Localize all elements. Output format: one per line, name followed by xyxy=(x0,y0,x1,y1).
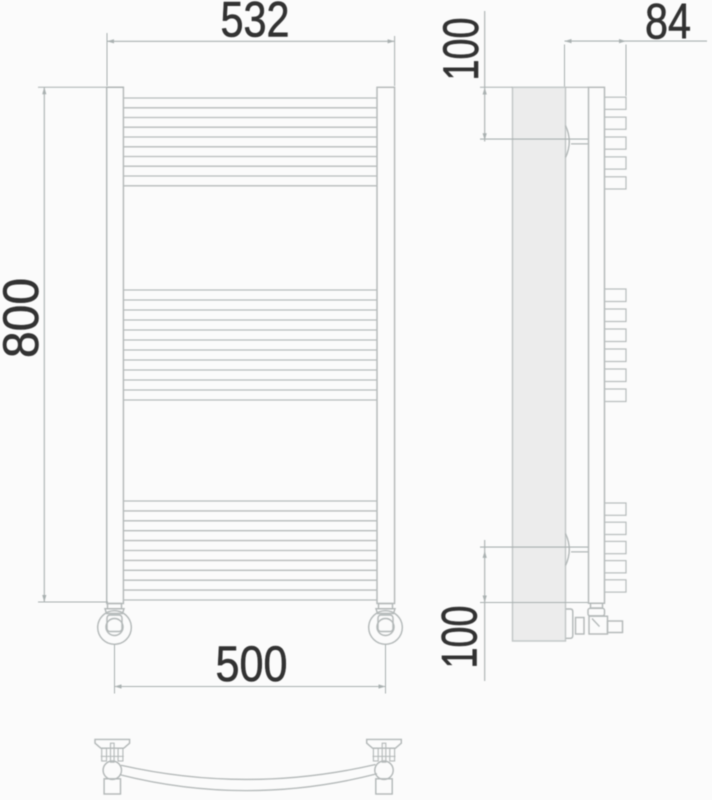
svg-text:800: 800 xyxy=(0,278,49,358)
svg-text:100: 100 xyxy=(432,606,488,669)
svg-text:84: 84 xyxy=(645,0,691,50)
svg-text:500: 500 xyxy=(216,636,288,692)
svg-text:532: 532 xyxy=(221,0,290,48)
svg-text:100: 100 xyxy=(433,18,489,81)
